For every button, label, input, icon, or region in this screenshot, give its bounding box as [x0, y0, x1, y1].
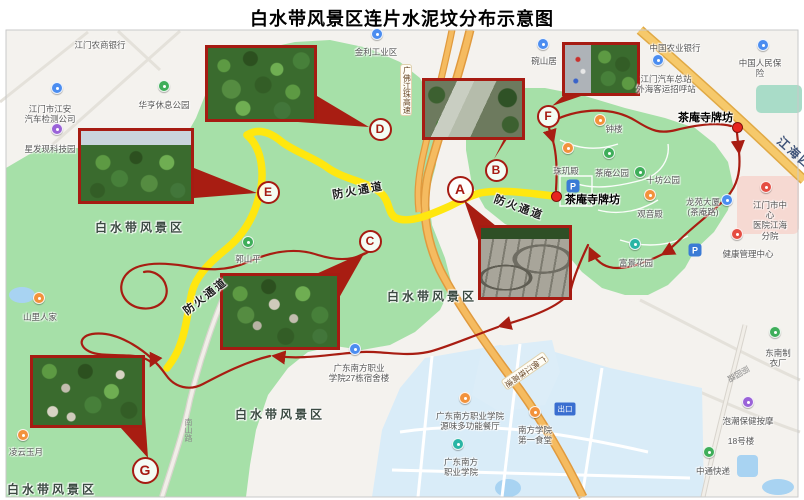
poi-pin-icon: [760, 181, 772, 193]
photo-inset-B: [422, 78, 525, 140]
poi-pin-icon: [742, 396, 754, 408]
parking-icon: P: [689, 244, 702, 257]
poi-pin-icon: [452, 438, 464, 450]
exit-badge: 出口: [555, 403, 576, 416]
road-name-label: 南山路: [183, 418, 194, 442]
poi-label: 中通快递: [696, 466, 730, 476]
poi-label: 十坊公园: [646, 175, 680, 185]
poi-label: 龙苑大厦 (茶庵路): [686, 197, 720, 217]
poi-pin-icon: [731, 228, 743, 240]
gate-marker-dot: [551, 191, 562, 202]
poi-pin-icon: [51, 123, 63, 135]
poi-label: 健康管理中心: [722, 249, 773, 259]
photo-inset-E: [78, 128, 194, 204]
poi-label: 中国人民保险: [738, 58, 782, 78]
poi-label: 江门市江安 汽车检测公司: [24, 104, 75, 124]
poi-pin-icon: [594, 114, 606, 126]
poi-label: 江门市中心 医院江海分院: [753, 200, 787, 241]
poi-pin-icon: [644, 189, 656, 201]
spot-marker-F: F: [537, 105, 560, 128]
poi-pin-icon: [603, 147, 615, 159]
poi-label: 凌云玉月: [9, 447, 43, 457]
poi-pin-icon: [459, 392, 471, 404]
poi-label: 观音殿: [637, 209, 663, 219]
poi-pin-icon: [703, 446, 715, 458]
poi-pin-icon: [757, 39, 769, 51]
poi-pin-icon: [17, 429, 29, 441]
poi-label: 广东南方 职业学院: [444, 457, 478, 477]
gate-marker-dot: [732, 122, 743, 133]
poi-pin-icon: [51, 82, 63, 94]
schematic-map-figure: 白水带风景区连片水泥坟分布示意图: [0, 0, 804, 500]
spot-marker-B: B: [485, 159, 508, 182]
poi-pin-icon: [634, 166, 646, 178]
ne-park: [756, 85, 802, 113]
poi-label: 18号楼: [728, 436, 754, 446]
poi-pin-icon: [769, 326, 781, 338]
photo-inset-C: [220, 273, 340, 350]
photo-inset-G: [30, 355, 145, 428]
poi-label: 茶庵公园: [595, 168, 629, 178]
photo-inset-D: [205, 45, 317, 122]
area-label: 白水带风景区: [387, 288, 477, 305]
poi-label: 山里人家: [23, 312, 57, 322]
poi-label: 南方学院 第一食堂: [518, 425, 552, 445]
poi-pin-icon: [371, 28, 383, 40]
poi-pin-icon: [537, 38, 549, 50]
area-label: 白水带风景区: [235, 406, 325, 423]
photo-inset-A: [478, 225, 572, 300]
poi-pin-icon: [349, 343, 361, 355]
poi-pin-icon: [33, 292, 45, 304]
poi-label: 金利工业区: [355, 47, 398, 57]
poi-label: 江门农商银行: [74, 40, 125, 50]
spot-marker-G: G: [132, 457, 159, 484]
spot-marker-C: C: [359, 230, 382, 253]
road-name-label: 广佛江珠高速: [400, 64, 412, 116]
poi-label: 碗山居: [531, 56, 557, 66]
poi-pin-icon: [652, 54, 664, 66]
photo-inset-F: [562, 42, 640, 96]
poi-label: 星发现科技园: [24, 144, 75, 154]
poi-pin-icon: [629, 238, 641, 250]
gate-label: 茶庵寺牌坊: [565, 191, 620, 207]
poi-label: 广东南方职业学院 源味多功能餐厅: [436, 411, 504, 431]
poi-label: 钟楼: [605, 124, 622, 134]
spot-marker-A: A: [447, 176, 474, 203]
poi-label: 华亨休息公园: [138, 100, 189, 110]
area-label: 白水带风景区: [7, 481, 97, 498]
poi-label: 泡潮保健按摩: [722, 416, 773, 426]
poi-label: 江门汽车总站 外海客运招呼站: [636, 74, 696, 94]
spot-marker-E: E: [257, 181, 280, 204]
poi-label: 郭山平: [235, 254, 261, 264]
area-label: 白水带风景区: [95, 219, 185, 236]
poi-pin-icon: [529, 406, 541, 418]
poi-label: 富景花园: [619, 258, 653, 268]
poi-label: 东南制衣厂: [765, 348, 791, 368]
poi-pin-icon: [562, 142, 574, 154]
poi-pin-icon: [158, 80, 170, 92]
gate-label: 茶庵寺牌坊: [678, 109, 733, 125]
poi-pin-icon: [721, 194, 733, 206]
poi-label: 珠玑殿: [553, 166, 579, 176]
spot-marker-D: D: [369, 118, 392, 141]
poi-label: 中国农业银行: [649, 43, 700, 53]
poi-pin-icon: [242, 236, 254, 248]
poi-label: 广东南方职业 学院27栋宿舍楼: [329, 363, 389, 383]
